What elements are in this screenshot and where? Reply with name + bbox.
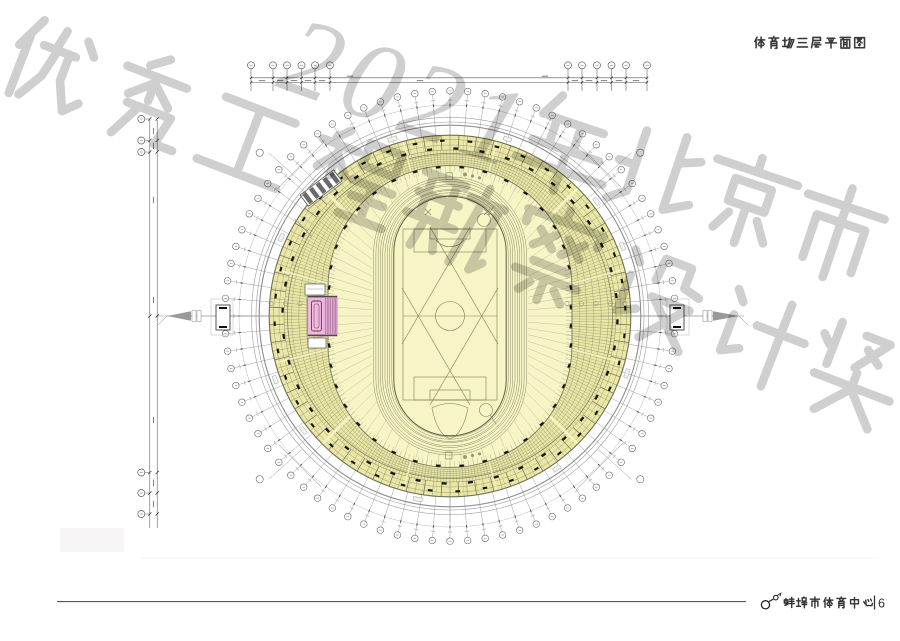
svg-text:6: 6 xyxy=(878,597,885,611)
